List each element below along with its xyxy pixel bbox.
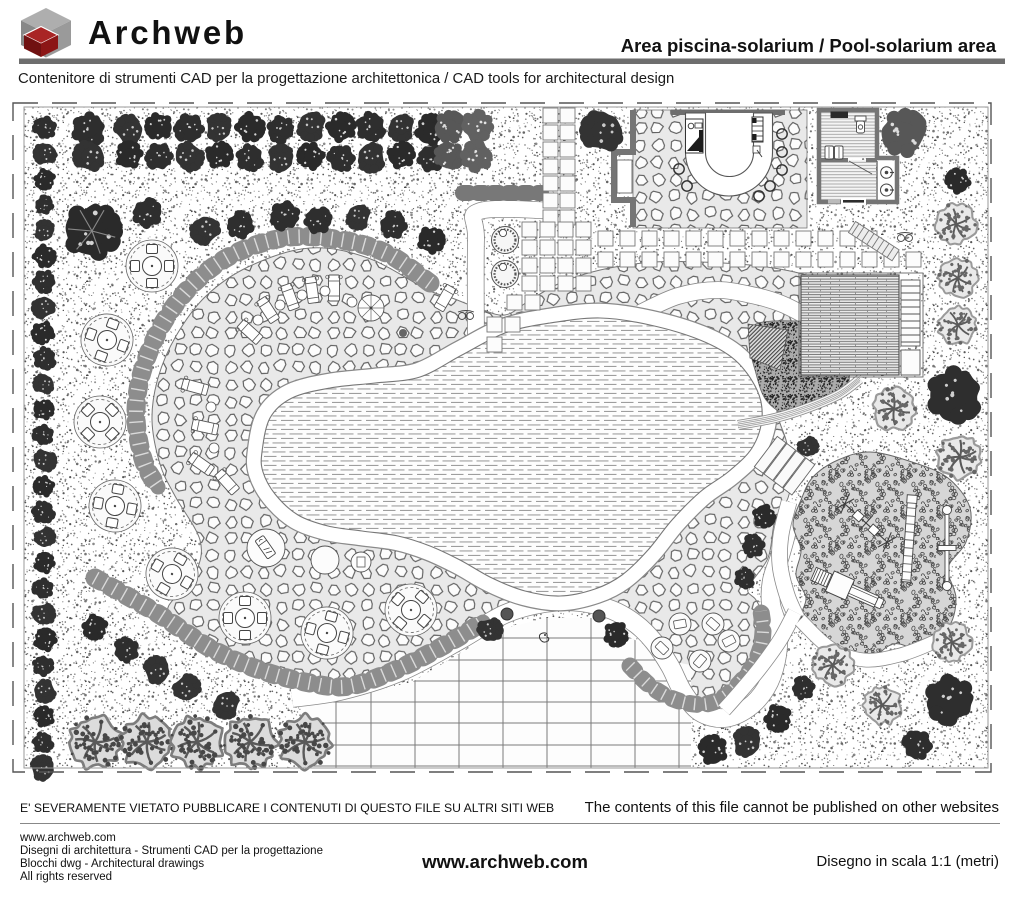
svg-text:Disegno in scala 1:1 (metri): Disegno in scala 1:1 (metri) (816, 853, 999, 870)
svg-text:E' SEVERAMENTE VIETATO PUBBLIC: E' SEVERAMENTE VIETATO PUBBLICARE I CONT… (20, 801, 554, 815)
svg-text:www.archweb.com: www.archweb.com (421, 851, 588, 872)
svg-text:The contents of this file cann: The contents of this file cannot be publ… (585, 799, 999, 816)
svg-text:Archweb: Archweb (88, 14, 247, 51)
svg-text:Disegni di architettura - Stru: Disegni di architettura - Strumenti CAD … (20, 845, 323, 857)
svg-text:www.archweb.com: www.archweb.com (19, 832, 116, 844)
svg-text:All rights reserved: All rights reserved (20, 871, 112, 883)
svg-text:Blocchi dwg - Architectural dr: Blocchi dwg - Architectural drawings (20, 858, 204, 870)
svg-text:Contenitore di strumenti CAD p: Contenitore di strumenti CAD per la prog… (18, 71, 674, 87)
svg-text:Area piscina-solarium / Pool: Area piscina-solarium / Pool-solarium ar… (621, 35, 997, 56)
